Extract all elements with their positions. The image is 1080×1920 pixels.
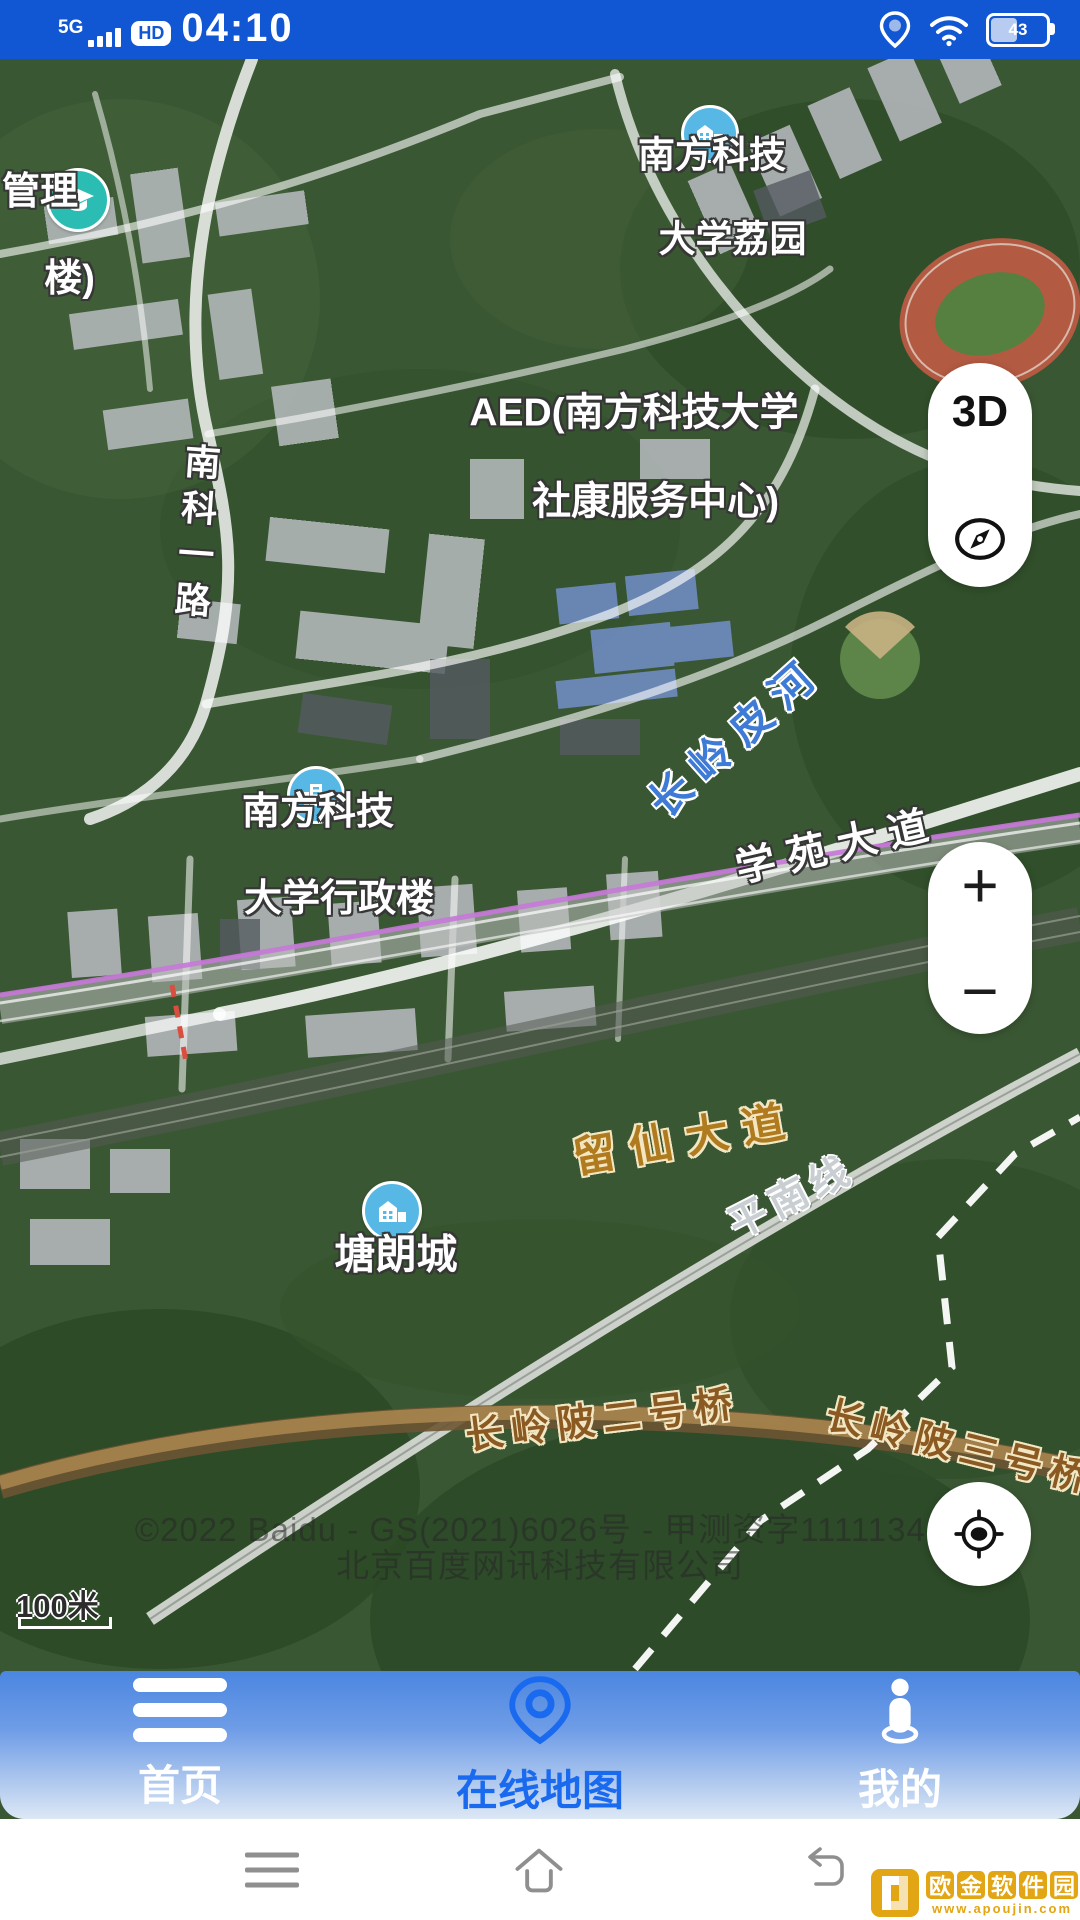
nav-online-map-label: 在线地图	[456, 1757, 624, 1818]
battery-icon: 43	[986, 13, 1050, 47]
watermark-title: 欧 金 软 件 园	[926, 1871, 1078, 1899]
home-menu-icon	[133, 1678, 227, 1742]
locate-me-button[interactable]	[927, 1482, 1031, 1586]
poi-tanglangcheng-label[interactable]: 塘朗城	[335, 1232, 458, 1279]
crosshair-target-icon	[950, 1505, 1008, 1563]
hd-volte-icon: HD	[131, 21, 171, 46]
compass-button[interactable]	[952, 515, 1008, 563]
nav-item-home[interactable]: 首页	[0, 1671, 360, 1819]
map-scale-bar	[18, 1617, 112, 1629]
poi-guanlilou-label[interactable]: 管理 楼)	[2, 171, 95, 301]
android-back-button[interactable]	[795, 1844, 851, 1896]
network-type-label: 5G	[58, 17, 83, 39]
android-recents-button[interactable]	[245, 1852, 299, 1887]
map-pin-icon	[502, 1673, 578, 1747]
status-right-group: 43	[878, 10, 1050, 50]
watermark-logo-icon	[870, 1868, 920, 1918]
buildings-icon	[377, 1198, 407, 1224]
zoom-in-button[interactable]: +	[928, 852, 1032, 918]
status-bar: 5G HD 04:10 43	[0, 0, 1080, 59]
poi-liyuan-label[interactable]: 南方科技 大学荔园	[617, 135, 806, 262]
watermark-url: www.apoujin.com	[926, 1901, 1078, 1916]
map-view-pill: 3D	[928, 363, 1032, 587]
nav-item-mine[interactable]: 我的	[720, 1671, 1080, 1819]
android-navigation-bar: 欧 金 软 件 园 www.apoujin.com	[0, 1819, 1080, 1920]
map-copyright-line2: 北京百度网讯科技有限公司	[0, 1539, 1080, 1587]
nav-home-label: 首页	[138, 1752, 222, 1813]
nav-item-online-map[interactable]: 在线地图	[360, 1671, 720, 1819]
status-time: 04:10	[181, 6, 293, 51]
poi-xingzhenglou-label[interactable]: 南方科技 大学行政楼	[202, 791, 434, 921]
android-home-button[interactable]	[508, 1842, 570, 1898]
threed-button[interactable]: 3D	[952, 387, 1008, 437]
location-active-icon	[878, 10, 912, 50]
signal-strength-icon: 5G	[58, 25, 121, 53]
zoom-out-button[interactable]: −	[928, 958, 1032, 1024]
wifi-icon	[928, 13, 970, 47]
watermark: 欧 金 软 件 园 www.apoujin.com	[870, 1868, 1078, 1918]
map-canvas[interactable]: 南方科技 大学荔园 管理 楼) AED(南方科技大学 社康服务中心) 南科一路 …	[0, 59, 1080, 1824]
nav-mine-label: 我的	[858, 1756, 942, 1817]
battery-percent: 43	[1009, 20, 1028, 40]
bottom-nav-bar: 首页 在线地图 我的	[0, 1671, 1080, 1819]
zoom-control-pill: + −	[928, 842, 1032, 1034]
status-left-group: 5G HD 04:10	[58, 6, 294, 53]
person-icon	[868, 1674, 932, 1746]
aed-poi-label[interactable]: AED(南方科技大学 社康服务中心)	[469, 391, 798, 524]
